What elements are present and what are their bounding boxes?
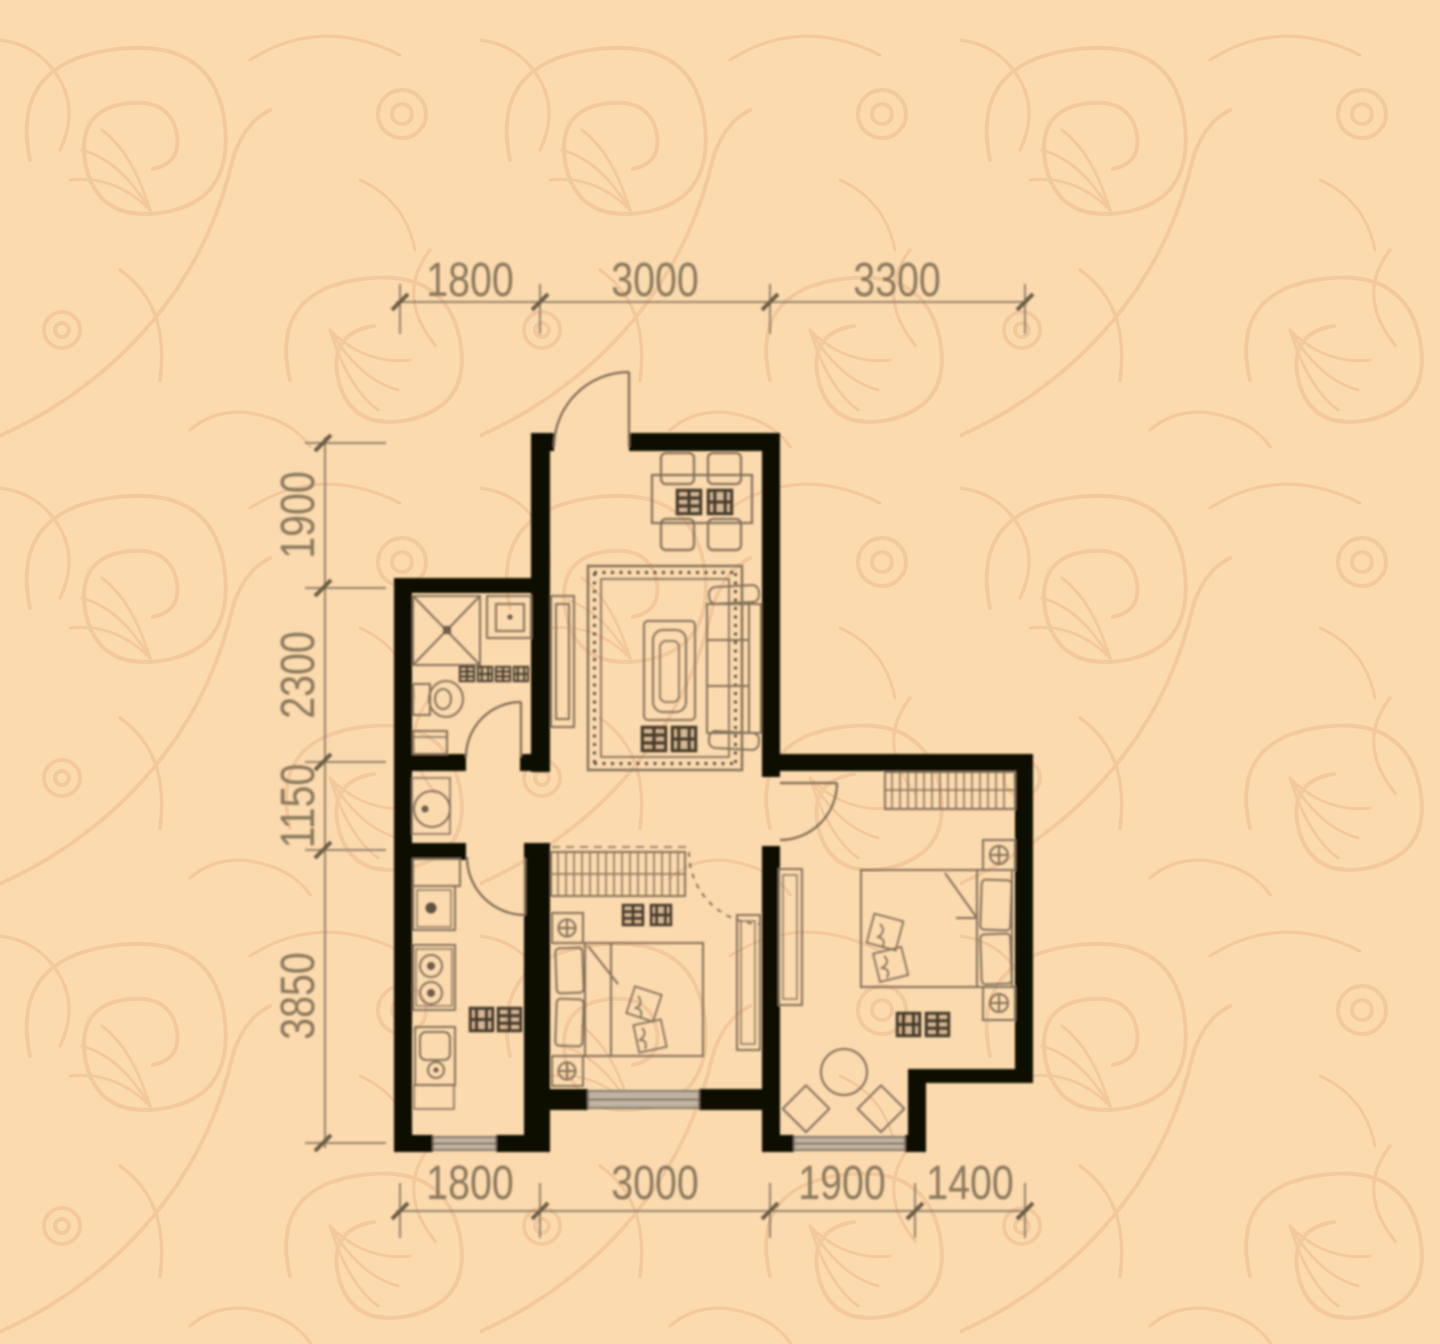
svg-text:1800: 1800 <box>426 1156 514 1210</box>
svg-text:1400: 1400 <box>926 1156 1014 1210</box>
svg-text:1150: 1150 <box>271 764 325 849</box>
svg-text:1800: 1800 <box>426 253 514 307</box>
svg-text:2300: 2300 <box>271 631 325 719</box>
svg-text:3000: 3000 <box>611 1156 699 1210</box>
svg-text:3000: 3000 <box>611 253 699 307</box>
svg-text:1900: 1900 <box>271 471 325 559</box>
svg-text:3850: 3850 <box>271 952 325 1040</box>
svg-text:1900: 1900 <box>798 1156 886 1210</box>
svg-text:3300: 3300 <box>853 253 941 307</box>
